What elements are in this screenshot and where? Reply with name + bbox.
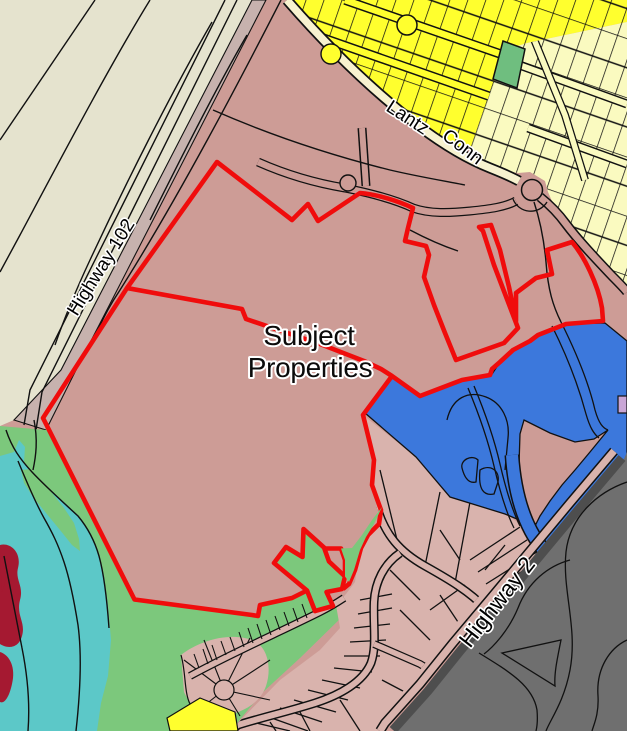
svg-text:Subject: Subject	[263, 320, 355, 351]
svg-text:Properties: Properties	[248, 352, 373, 383]
